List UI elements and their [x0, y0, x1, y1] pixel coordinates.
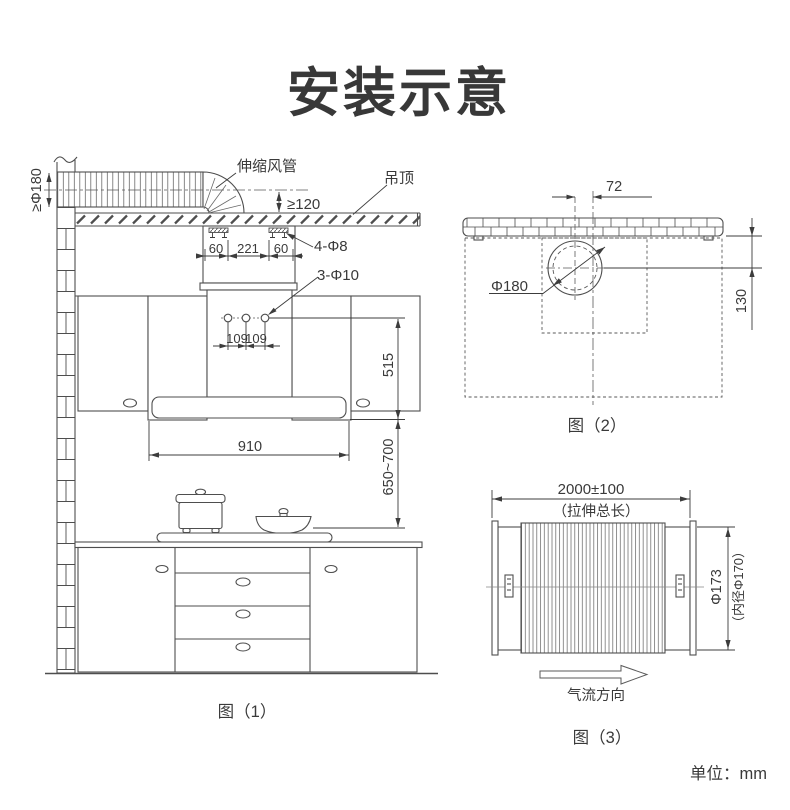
hood-inner-box-dashed	[542, 238, 647, 333]
dim-60-left: 60	[209, 241, 223, 256]
brick-wall	[57, 207, 75, 673]
dim-inner-diameter-note: （内径Φ170）	[731, 545, 746, 629]
dim-221: 221	[237, 241, 259, 256]
fig3-caption: 图（3）	[573, 728, 632, 747]
label-ceiling-holes: 4-Φ8	[314, 238, 348, 255]
cooktop	[157, 533, 332, 542]
airflow-arrow-icon	[540, 666, 647, 685]
dim-109-right: 109	[245, 331, 267, 346]
figure-2-top-view: 72 Φ180 130 图（2）	[463, 179, 762, 435]
dim-min-duct-diameter: ≥Φ180	[29, 168, 45, 212]
dim-910: 910	[238, 439, 262, 455]
duct-lip-right	[690, 521, 696, 655]
countertop	[75, 542, 422, 548]
duct-body	[486, 521, 704, 655]
chimney-flange	[200, 283, 297, 290]
base-cabinet	[45, 542, 438, 674]
dim-515: 515	[381, 353, 397, 377]
duct-sticker-right	[676, 575, 684, 597]
dim-phi180: Φ180	[491, 278, 528, 295]
dim-650-700: 650~700	[381, 439, 397, 496]
installation-diagram-page: 安装示意	[0, 0, 790, 810]
cookware	[157, 489, 332, 542]
wall-screw-holes	[221, 314, 272, 322]
label-flex-duct: 伸缩风管	[237, 158, 297, 175]
pot	[176, 489, 225, 532]
dim-phi173: Φ173	[709, 569, 725, 605]
hood-outline-dashed	[465, 238, 722, 397]
flex-duct	[44, 172, 310, 213]
dim-72: 72	[606, 179, 622, 195]
figure-1-side-view: ≥Φ180 伸缩风管 吊顶 ≥120 60 221 60	[29, 157, 438, 721]
label-airflow: 气流方向	[567, 687, 625, 704]
duct-bend	[203, 172, 244, 213]
duct-sticker-left	[505, 575, 513, 597]
unit-note: 单位：mm	[690, 764, 767, 783]
figure-3-duct: 2000±100 （拉伸总长） Φ173 （内	[486, 481, 746, 747]
dim-2000-note: （拉伸总长）	[553, 503, 640, 520]
label-ceiling: 吊顶	[384, 170, 414, 187]
dim-2000: 2000±100	[558, 481, 625, 498]
duct-lip-left	[492, 521, 498, 655]
wall-cabinet-left	[78, 296, 148, 411]
label-wall-holes: 3-Φ10	[317, 267, 359, 284]
fig2-caption: 图（2）	[568, 416, 627, 435]
fig2-dimensions: 72 Φ180 130	[489, 179, 762, 330]
fig3-diameter-dimension: Φ173 （内径Φ170）	[697, 527, 746, 650]
hood-body	[152, 397, 346, 418]
dim-60-right: 60	[274, 241, 288, 256]
page-title: 安装示意	[287, 64, 511, 123]
diagram-canvas: 安装示意	[0, 0, 790, 810]
wok	[256, 509, 311, 534]
duct-corrugation	[521, 523, 665, 653]
dim-130: 130	[734, 289, 750, 313]
fig3-length-dimension: 2000±100 （拉伸总长）	[492, 481, 690, 520]
ceiling	[75, 213, 420, 226]
wall-break	[54, 157, 77, 172]
fig1-caption: 图（1）	[218, 702, 277, 721]
dim-min-gap: ≥120	[287, 196, 320, 213]
